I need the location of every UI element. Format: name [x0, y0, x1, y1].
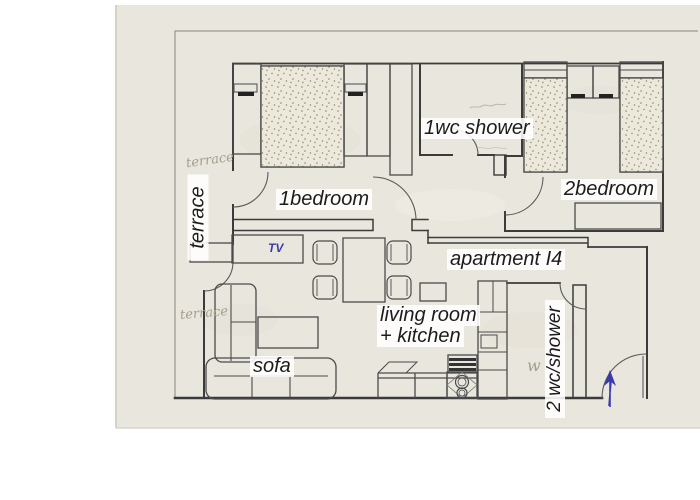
pencil-w-mark: w: [524, 358, 544, 375]
label-wc1: 1wc shower: [421, 118, 533, 139]
label-wc2: 2 wc/shower: [545, 300, 565, 418]
floorplan-drawing: [0, 0, 700, 500]
label-bedroom1: 1bedroom: [276, 189, 372, 210]
label-terrace: terrace: [188, 175, 209, 261]
label-living-line2: + kitchen: [377, 326, 464, 347]
label-apartment: apartment I4: [447, 249, 565, 270]
floorplan-scan: 1bedroom 1wc shower 2bedroom apartment I…: [0, 0, 700, 500]
label-living-line1: living room: [377, 305, 480, 326]
label-bedroom2: 2bedroom: [561, 179, 657, 200]
label-sofa: sofa: [250, 356, 294, 377]
label-living-kitchen: living room + kitchen: [377, 305, 480, 347]
label-tv: TV: [265, 242, 286, 255]
